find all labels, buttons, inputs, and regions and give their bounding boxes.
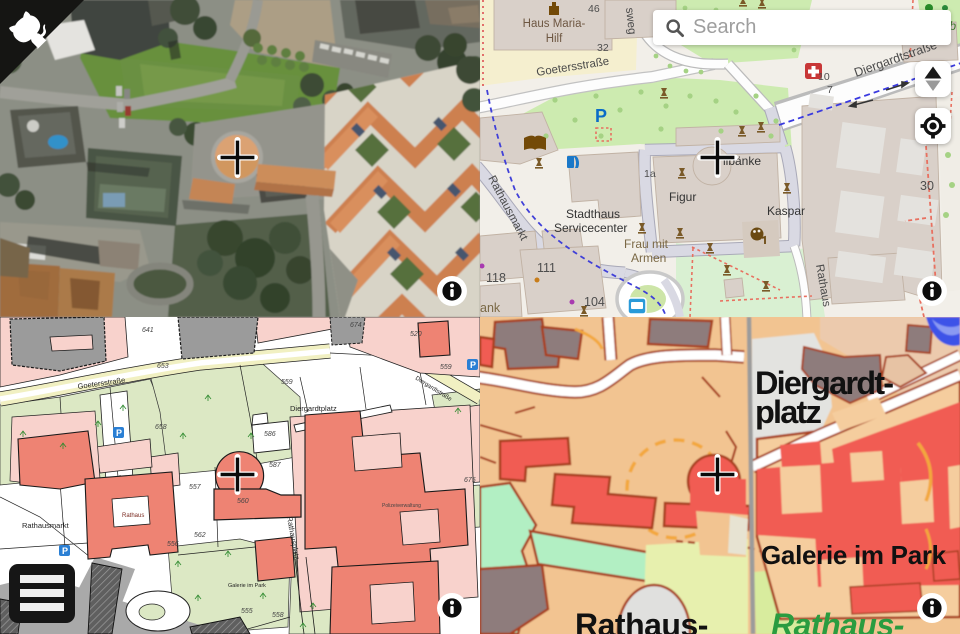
svg-text:557: 557 — [189, 484, 202, 491]
svg-text:Galerie im Park: Galerie im Park — [228, 583, 266, 589]
svg-text:674: 674 — [350, 322, 362, 329]
svg-text:Galerie im Park: Galerie im Park — [761, 540, 947, 570]
svg-text:P: P — [595, 106, 607, 126]
svg-text:559: 559 — [281, 379, 293, 386]
svg-text:32: 32 — [597, 42, 609, 54]
svg-text:30: 30 — [920, 179, 934, 193]
svg-text:658: 658 — [155, 424, 167, 431]
svg-text:1a: 1a — [644, 168, 656, 180]
svg-text:Diergardtplatz: Diergardtplatz — [290, 404, 337, 413]
svg-text:556: 556 — [167, 541, 179, 548]
svg-text:ank: ank — [480, 301, 501, 315]
svg-text:Frau mit: Frau mit — [624, 237, 669, 251]
svg-text:653: 653 — [157, 363, 169, 370]
svg-text:Kaspar: Kaspar — [767, 204, 805, 218]
svg-text:platz: platz — [755, 394, 822, 430]
svg-text:559: 559 — [440, 364, 452, 371]
svg-text:Armen: Armen — [631, 251, 666, 265]
svg-text:P: P — [116, 428, 122, 438]
svg-text:111: 111 — [537, 261, 556, 275]
svg-text:46: 46 — [588, 3, 600, 15]
svg-text:675: 675 — [464, 477, 476, 484]
svg-text:118: 118 — [486, 271, 506, 285]
svg-text:586: 586 — [264, 431, 276, 438]
svg-text:Rathaus-: Rathaus- — [575, 607, 708, 634]
svg-text:Hilf: Hilf — [546, 33, 563, 45]
svg-text:Rathaus-: Rathaus- — [771, 607, 904, 634]
svg-text:587: 587 — [269, 462, 282, 469]
svg-text:P: P — [470, 360, 476, 370]
svg-text:104: 104 — [584, 295, 605, 309]
svg-text:558: 558 — [272, 612, 284, 619]
svg-text:520: 520 — [410, 331, 422, 338]
svg-text:641: 641 — [142, 327, 154, 334]
svg-text:Rathausmarkt: Rathausmarkt — [22, 521, 70, 530]
svg-text:Stadthaus: Stadthaus — [566, 207, 620, 221]
svg-text:Haus Maria-: Haus Maria- — [523, 18, 586, 30]
svg-text:Servicecenter: Servicecenter — [554, 221, 627, 235]
svg-text:7: 7 — [827, 84, 833, 96]
svg-text:560: 560 — [237, 498, 249, 505]
svg-text:555: 555 — [241, 608, 253, 615]
svg-text:P: P — [62, 546, 68, 556]
svg-text:562: 562 — [194, 532, 206, 539]
svg-text:10: 10 — [818, 71, 830, 83]
svg-text:Rathaus: Rathaus — [122, 513, 144, 519]
svg-text:Figur: Figur — [669, 190, 696, 204]
svg-text:Polizeiverwaltung: Polizeiverwaltung — [382, 503, 421, 509]
